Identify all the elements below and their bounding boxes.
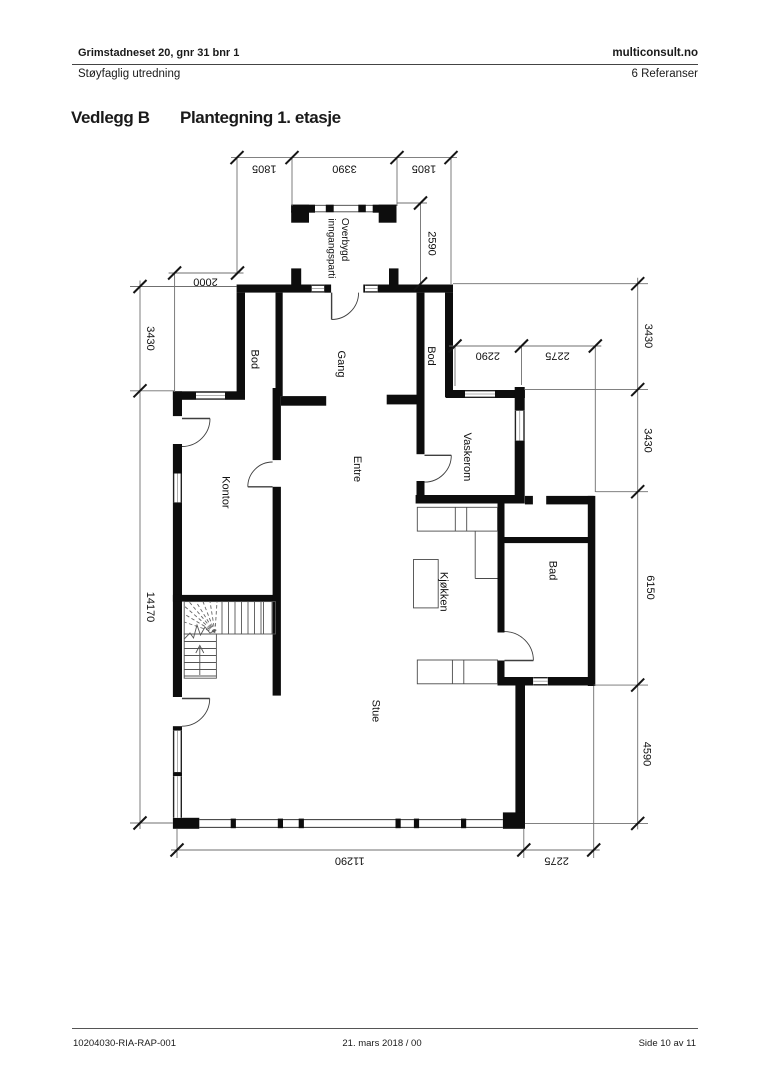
svg-text:Entre: Entre <box>351 456 363 482</box>
svg-text:4590: 4590 <box>641 742 653 766</box>
svg-text:Vaskerom: Vaskerom <box>461 433 473 482</box>
svg-text:3430: 3430 <box>642 428 654 452</box>
svg-text:Kontor: Kontor <box>220 476 232 509</box>
svg-text:2275: 2275 <box>544 855 568 867</box>
svg-text:1805: 1805 <box>252 163 276 175</box>
svg-text:11290: 11290 <box>335 855 365 867</box>
svg-text:Bod: Bod <box>248 350 260 370</box>
svg-text:Bad: Bad <box>547 561 559 581</box>
svg-text:Stue: Stue <box>370 700 382 723</box>
svg-text:6150: 6150 <box>644 575 656 599</box>
svg-text:2290: 2290 <box>476 350 500 362</box>
svg-text:3430: 3430 <box>642 324 654 348</box>
svg-text:2590: 2590 <box>426 231 438 255</box>
svg-text:Kjøkken: Kjøkken <box>437 572 449 612</box>
svg-text:1805: 1805 <box>412 163 436 175</box>
svg-text:2275: 2275 <box>545 350 569 362</box>
svg-text:2000: 2000 <box>193 276 217 288</box>
svg-text:Overbygd: Overbygd <box>339 218 350 261</box>
svg-text:inngangsparti: inngangsparti <box>325 218 336 278</box>
svg-text:3430: 3430 <box>144 326 156 350</box>
svg-text:3390: 3390 <box>332 163 356 175</box>
svg-text:Gang: Gang <box>335 351 347 378</box>
svg-text:Bod: Bod <box>425 346 437 366</box>
svg-text:14170: 14170 <box>144 592 156 623</box>
